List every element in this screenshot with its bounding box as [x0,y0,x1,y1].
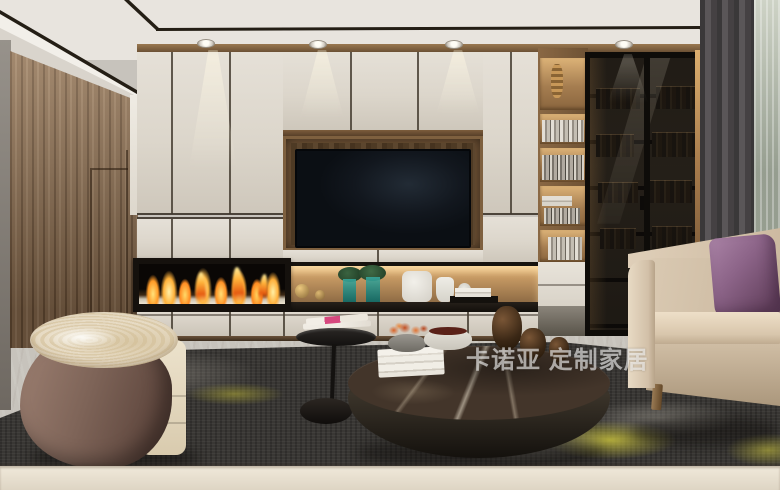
green-glass-vase [366,277,380,302]
cabinet-seam [171,219,173,262]
gold-ball-ornament [295,284,309,298]
wall-tv-screen [295,149,471,248]
mid-cabinet-row-right [483,217,538,262]
shelf-books [548,237,582,260]
downlight [615,40,633,49]
potpourri [429,327,467,335]
book-stack [455,288,491,297]
mid-cabinet-row-left [137,219,283,262]
shelf-toe-kick [538,306,588,336]
cabinet-seam [417,52,419,130]
upper-cabinet-doors-right [483,52,538,214]
downlight [309,40,327,49]
sofa-shadow [630,416,780,446]
shelf-base-drawers [538,262,588,306]
sofa-seat-cushion [636,312,780,344]
shelf-niche [540,58,586,110]
green-glass-vase [343,279,356,302]
cabinet-seam [283,312,285,336]
glass-cabinet-frame [585,52,590,336]
hanging-rope-decor [551,64,563,98]
glass-cabinet-frame [585,52,706,58]
cabinet-handle [640,196,644,210]
shelf-books [542,120,584,142]
cabinet-seam [171,52,173,214]
armchair-onyx-rim [30,312,178,368]
cabinet-seam [483,213,538,215]
side-table-base [300,398,352,424]
drawer-groove [538,284,588,286]
sheer-curtain [754,0,780,246]
wood-accent-wall [10,48,138,348]
white-sculpture [402,271,432,302]
cabinet-seam [377,312,379,336]
brand-watermark: 卡诺亚 定制家居 [466,340,649,375]
cabinet-seam [229,312,231,336]
side-wall-sliver [0,40,11,410]
cabinet-seam [229,219,231,262]
downlight [197,39,215,48]
red-flower-posy [385,321,429,338]
decor-tray [450,296,498,303]
shelf-books [542,155,584,180]
stacked-books [542,196,572,206]
cabinet-seam [137,213,283,215]
shelf-books [544,208,580,224]
cabinet-seam [510,52,512,214]
cabinet-seam [350,52,352,130]
gold-ornament [315,290,325,300]
downlight [445,40,463,49]
foreground-table-edge [0,466,780,490]
hidden-door-seam [90,168,128,170]
purple-cushion [709,233,780,320]
living-room-render: 卡诺亚 定制家居 [0,0,780,490]
